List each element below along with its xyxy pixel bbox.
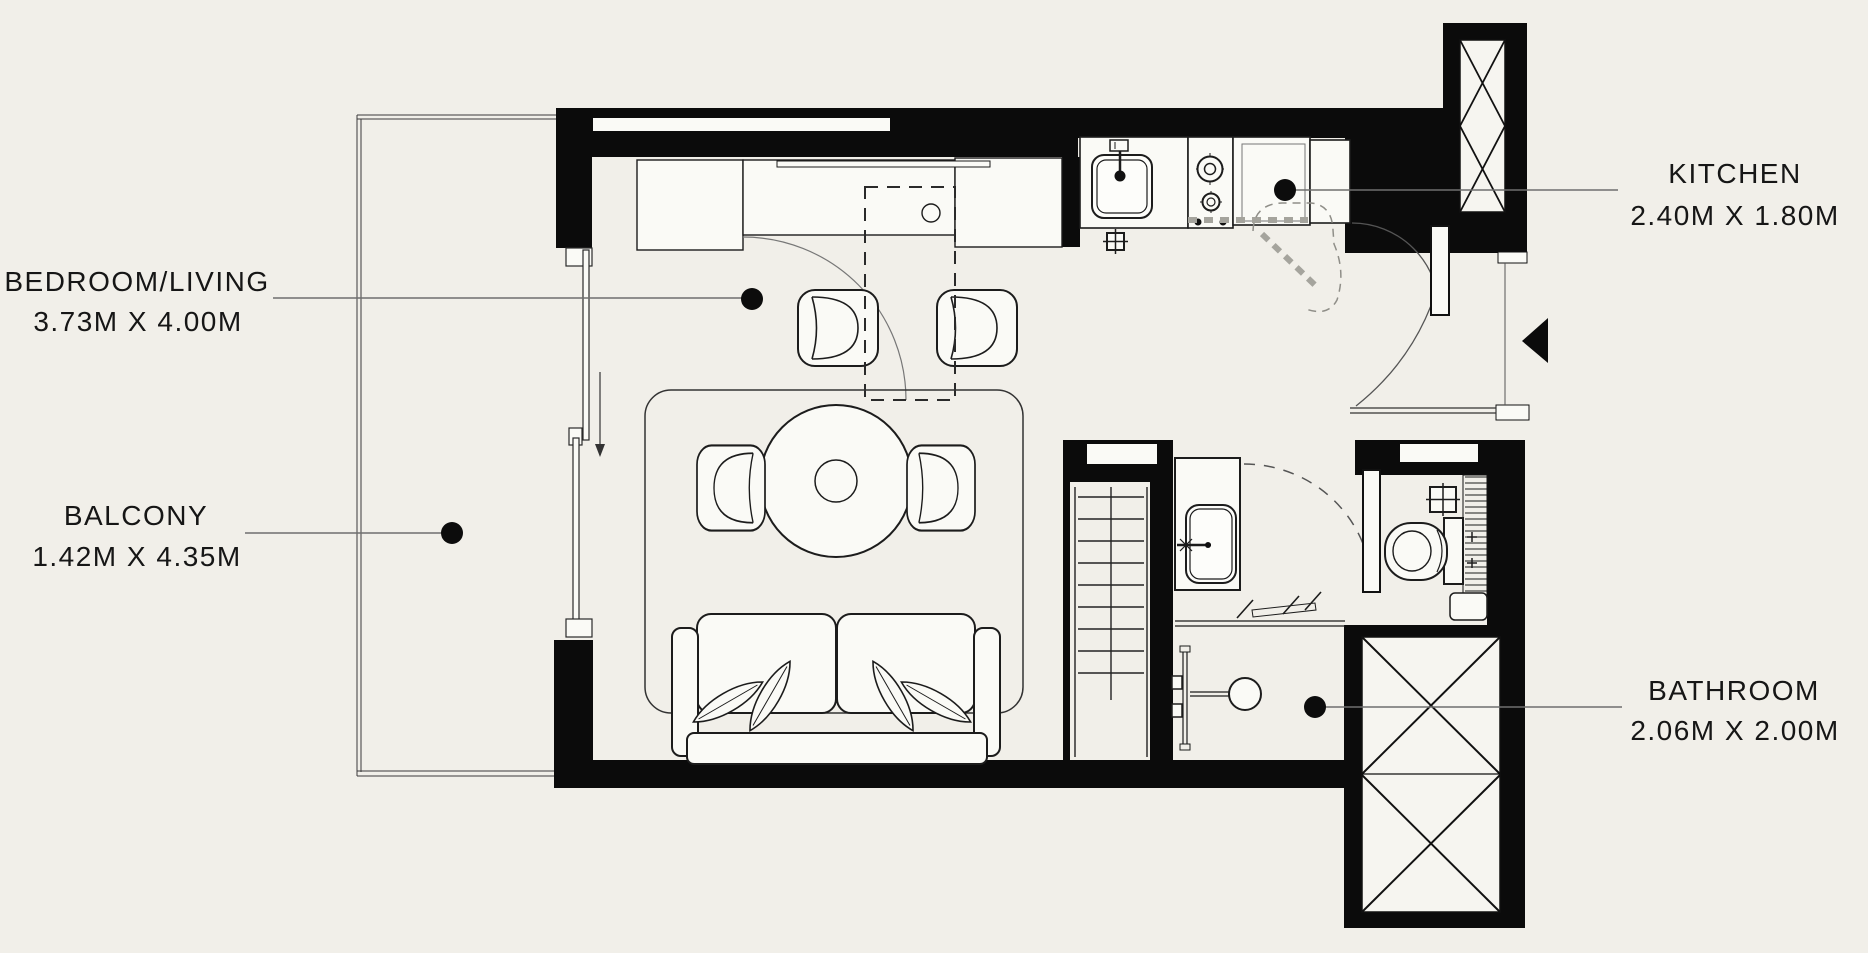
floor-drain-icon [1103, 229, 1128, 254]
label-bathroom-name: BATHROOM [1648, 675, 1820, 706]
shaft-top-right [1460, 40, 1505, 212]
sliding-door [566, 248, 592, 637]
balcony-outline [357, 115, 557, 776]
dining-chair-right [907, 445, 975, 530]
floor-plan: BEDROOM/LIVING 3.73M X 4.00M BALCONY 1.4… [0, 0, 1868, 953]
label-kitchen-dimensions: 2.40M X 1.80M [1630, 200, 1839, 231]
entry-threshold [1498, 252, 1527, 263]
bathroom-niche [1400, 444, 1478, 462]
label-bathroom-dimensions: 2.06M X 2.00M [1630, 715, 1839, 746]
bathroom-block-top-lines [1350, 408, 1496, 413]
shower-valve-icon [1172, 676, 1182, 689]
shower-shelf [1450, 593, 1487, 620]
entry-sill [1496, 405, 1529, 420]
counter-units [637, 158, 1062, 250]
bathroom-vanity [1175, 458, 1240, 590]
wardrobe [1075, 487, 1147, 757]
desk-chair-right [937, 290, 1017, 366]
entrance-arrow-icon [1522, 318, 1548, 363]
label-kitchen-name: KITCHEN [1668, 158, 1801, 189]
faucet-icon [1110, 140, 1128, 151]
shower-valve-icon [1172, 704, 1182, 717]
bathroom-door-leaf [1363, 470, 1380, 592]
label-bedroom-living-dimensions: 3.73M X 4.00M [33, 306, 242, 337]
counter-shelf [777, 161, 990, 167]
shaft-bottom-right [1362, 637, 1500, 912]
sofa [672, 614, 1000, 764]
label-balcony-name: BALCONY [64, 500, 208, 531]
closet-niche [1087, 444, 1157, 464]
leader-dot-kitchen [1274, 179, 1296, 201]
dining-table [760, 405, 912, 557]
window-slot [593, 118, 890, 131]
slide-direction-arrow-icon [595, 372, 605, 457]
leader-dot-balcony [441, 522, 463, 544]
bathroom-door [1244, 464, 1380, 592]
leader-dot-bedroom [741, 288, 763, 310]
shower-head-icon [1229, 678, 1261, 710]
floor-plan-drawing: BEDROOM/LIVING 3.73M X 4.00M BALCONY 1.4… [0, 0, 1868, 953]
entry-door-leaf [1431, 226, 1449, 315]
label-bedroom-living-name: BEDROOM/LIVING [4, 266, 269, 297]
label-balcony-dimensions: 1.42M X 4.35M [32, 541, 241, 572]
leader-dot-bathroom [1304, 696, 1326, 718]
dining-chair-left [697, 445, 765, 530]
